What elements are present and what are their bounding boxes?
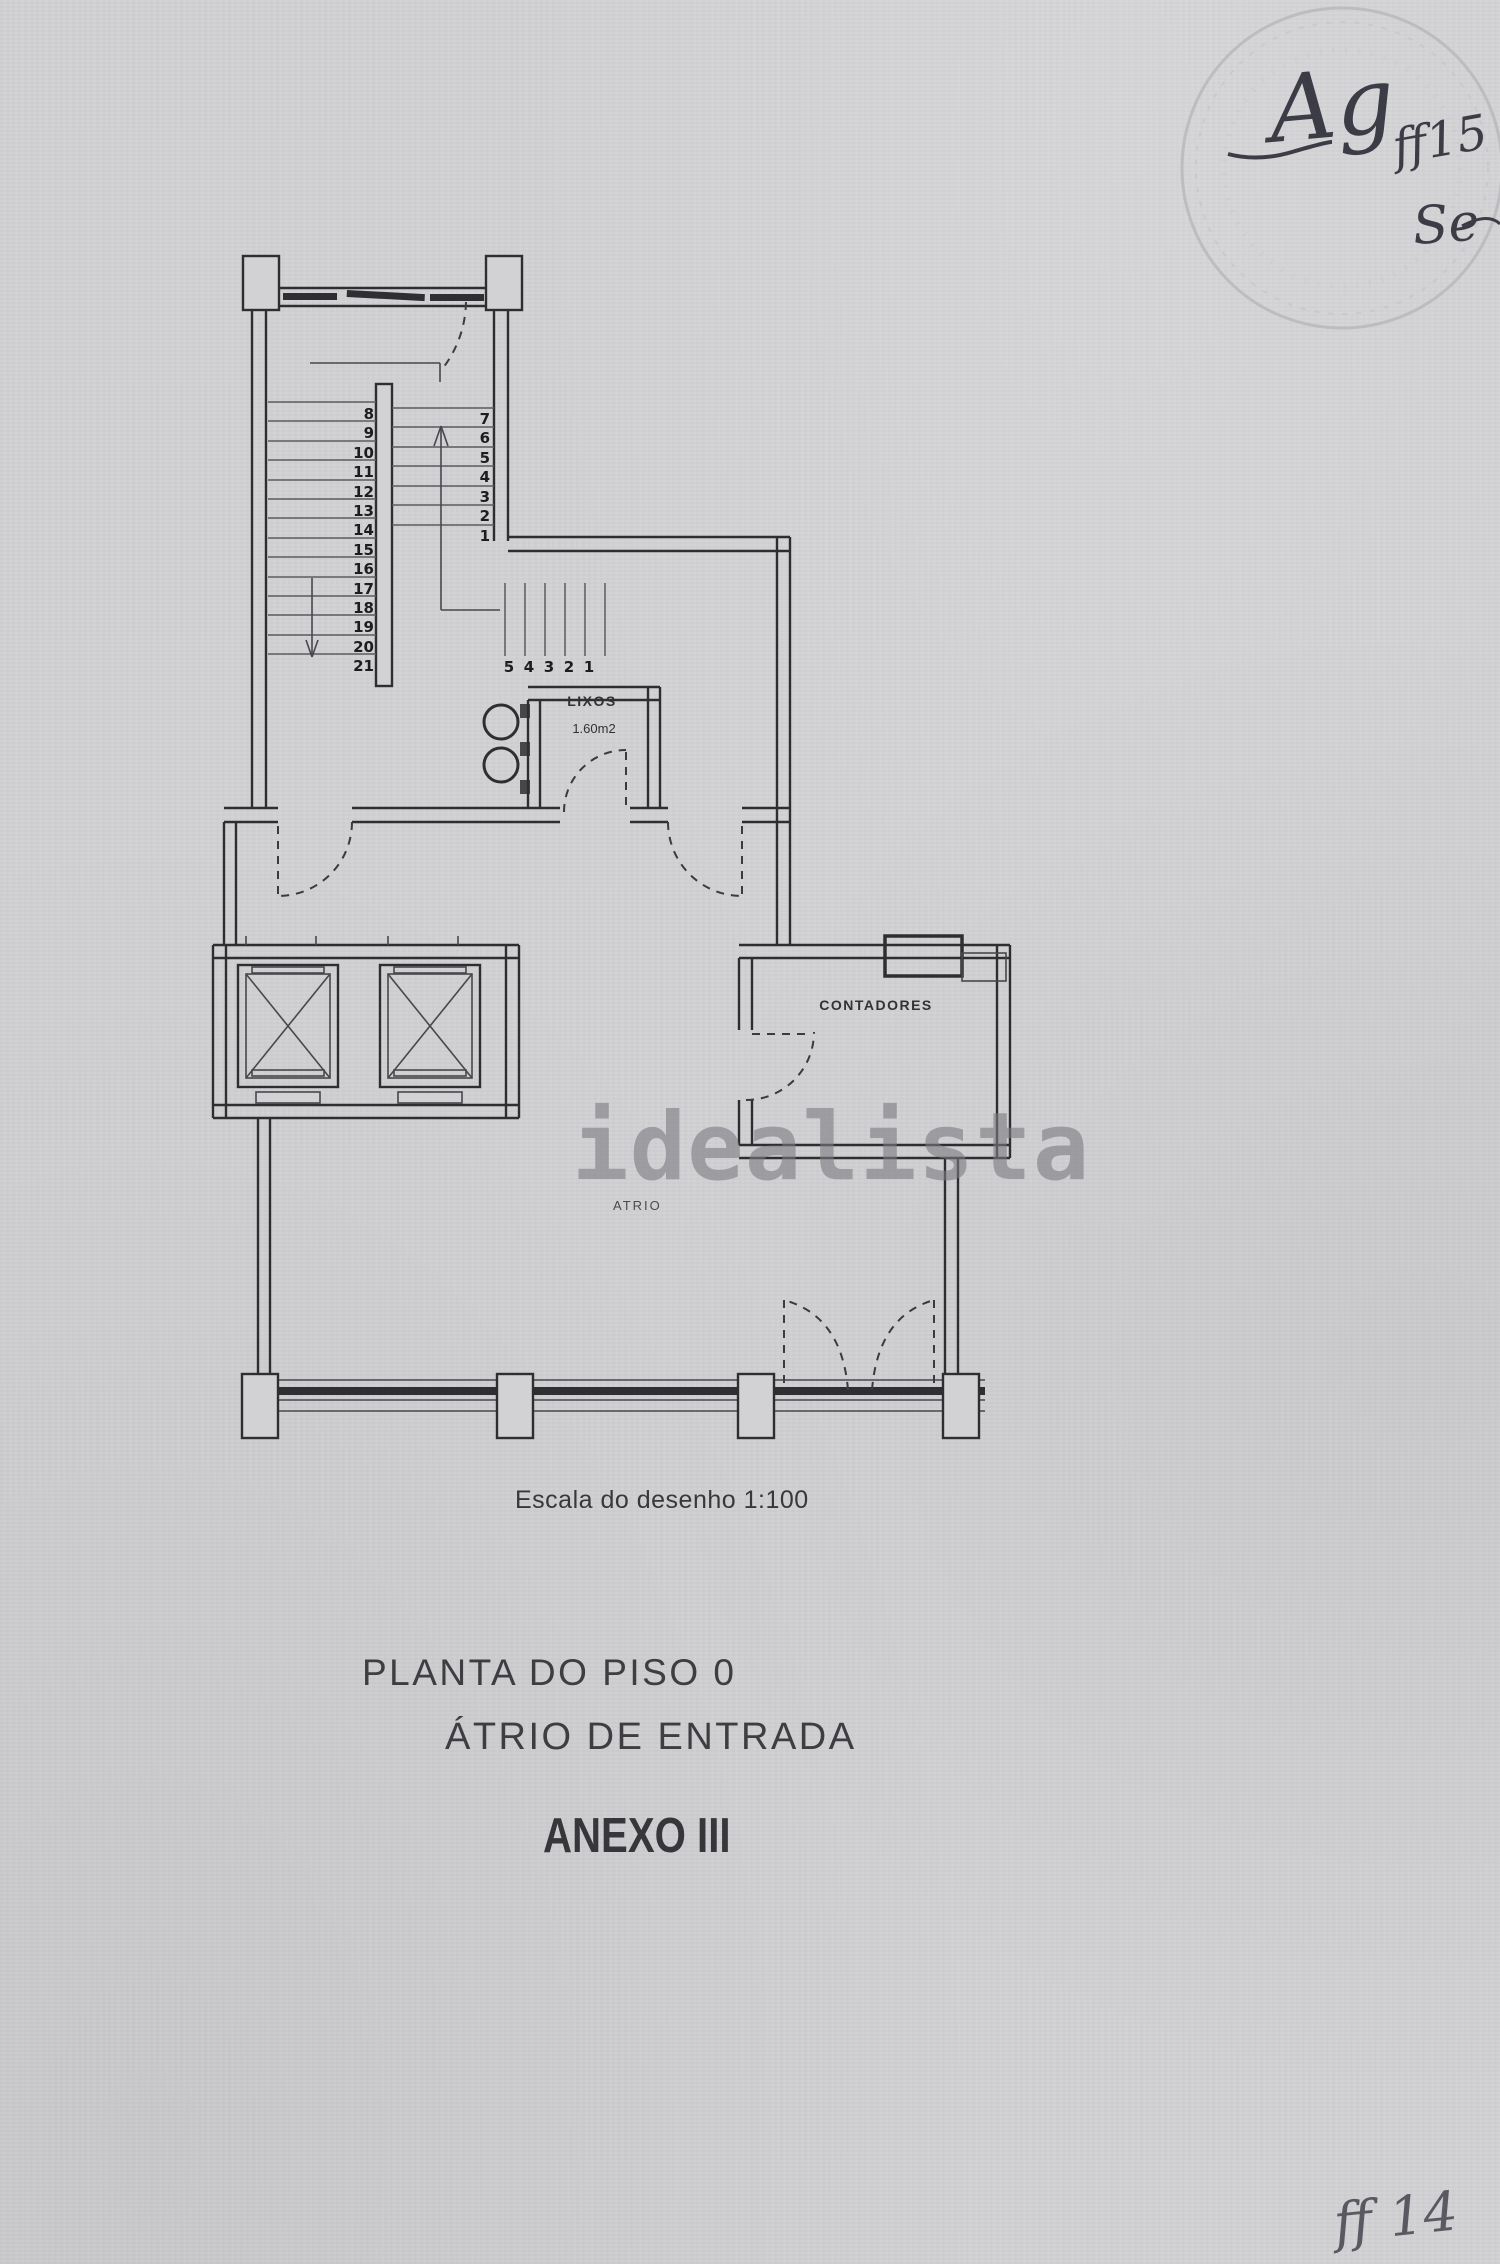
svg-text:17: 17	[353, 580, 374, 598]
svg-text:3: 3	[480, 488, 490, 506]
handwritten-code-top: ff15	[1385, 104, 1491, 176]
atrio: ATRIO	[242, 1198, 985, 1438]
svg-text:2: 2	[564, 658, 574, 676]
waste-bin	[484, 748, 518, 782]
column	[243, 256, 279, 310]
stair-step-numbers-left: 8 9 10 11 12 13 14 15 16 17 18 19 20 21	[353, 405, 374, 675]
svg-text:20: 20	[353, 638, 374, 656]
idealista-watermark: idealista	[572, 1093, 1090, 1202]
handwritten-annotations: Ag ff15 Se ff 14	[1228, 46, 1500, 2255]
door-swing-arc	[872, 1300, 934, 1390]
elevator-shaft	[238, 965, 338, 1103]
column	[486, 256, 522, 310]
stair-direction-down-arrow	[306, 578, 318, 657]
svg-text:8: 8	[364, 405, 374, 423]
stair-step-numbers-entry: 5 4 3 2 1	[504, 658, 594, 676]
door-swing-arc	[443, 302, 466, 368]
column	[242, 1374, 278, 1438]
elevator-door-sill	[398, 1092, 462, 1103]
column	[943, 1374, 979, 1438]
stairwell: 8 9 10 11 12 13 14 15 16 17 18 19 20 21	[243, 256, 605, 808]
door-swing-arc	[784, 1300, 848, 1390]
column	[738, 1374, 774, 1438]
handwritten-note: Se	[1411, 192, 1481, 256]
svg-text:18: 18	[353, 599, 374, 617]
stair-direction-up-arrow	[434, 426, 500, 610]
svg-text:14: 14	[353, 521, 374, 539]
svg-text:2: 2	[480, 507, 490, 525]
elevator-block	[213, 936, 519, 1118]
svg-text:16: 16	[353, 560, 374, 578]
elevator-shaft	[380, 965, 480, 1103]
svg-text:9: 9	[364, 424, 374, 442]
plan-subtitle: ÁTRIO DE ENTRADA	[445, 1716, 857, 1759]
svg-text:13: 13	[353, 502, 374, 520]
lixos-room: LIXOS 1.60m2	[484, 687, 660, 812]
scale-note: Escala do desenho 1:100	[515, 1486, 809, 1515]
annex-title: ANEXO III	[543, 1808, 731, 1864]
stair-step-numbers-right: 7 6 5 4 3 2 1	[480, 410, 490, 545]
svg-text:11: 11	[353, 463, 374, 481]
door-swing-arc	[564, 750, 626, 812]
svg-text:15: 15	[353, 541, 374, 559]
entrance-doors	[784, 1300, 934, 1390]
meter-cabinet	[885, 936, 962, 976]
svg-text:5: 5	[480, 449, 490, 467]
svg-text:4: 4	[480, 468, 490, 486]
svg-text:3: 3	[544, 658, 554, 676]
svg-text:1: 1	[480, 527, 490, 545]
svg-text:6: 6	[480, 429, 490, 447]
stair-steps-entry-flight	[505, 583, 605, 656]
door-swing-arc	[278, 822, 352, 896]
lixos-area: 1.60m2	[572, 721, 615, 736]
svg-text:5: 5	[504, 658, 514, 676]
door-swing-arc	[746, 1032, 814, 1100]
svg-text:21: 21	[353, 657, 374, 675]
handwritten-code-bottom: ff 14	[1327, 2179, 1461, 2255]
scanned-floor-plan-page: 8 9 10 11 12 13 14 15 16 17 18 19 20 21	[0, 0, 1500, 2264]
stair-spine-wall	[376, 384, 392, 686]
elevator-door-sill	[256, 1092, 320, 1103]
lixos-label: LIXOS	[567, 693, 617, 709]
svg-text:1: 1	[584, 658, 594, 676]
contadores-label: CONTADORES	[819, 997, 933, 1013]
svg-text:10: 10	[353, 444, 374, 462]
svg-text:12: 12	[353, 483, 374, 501]
column	[497, 1374, 533, 1438]
plan-title: PLANTA DO PISO 0	[362, 1652, 736, 1694]
door-swing-arc	[668, 822, 742, 896]
svg-text:7: 7	[480, 410, 490, 428]
svg-text:4: 4	[524, 658, 534, 676]
svg-text:19: 19	[353, 618, 374, 636]
handwritten-initials: Ag	[1257, 46, 1399, 164]
waste-bin	[484, 705, 518, 739]
